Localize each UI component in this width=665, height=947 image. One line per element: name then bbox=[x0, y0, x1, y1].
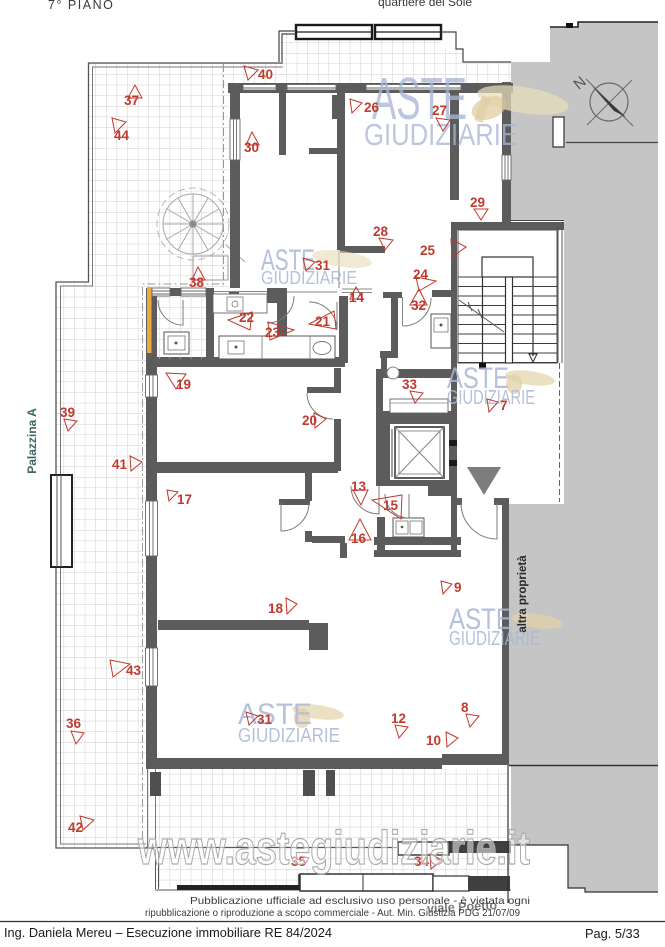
svg-text:GIUDIZIARIE: GIUDIZIARIE bbox=[261, 267, 357, 288]
svg-text:27: 27 bbox=[432, 103, 447, 118]
svg-text:10: 10 bbox=[426, 733, 441, 748]
svg-text:GIUDIZIARIE: GIUDIZIARIE bbox=[238, 725, 340, 747]
svg-text:32: 32 bbox=[411, 298, 426, 313]
svg-text:41: 41 bbox=[112, 457, 128, 472]
svg-text:17: 17 bbox=[177, 492, 192, 507]
svg-text:18: 18 bbox=[268, 601, 284, 616]
svg-text:38: 38 bbox=[189, 275, 205, 290]
svg-text:30: 30 bbox=[244, 140, 259, 155]
svg-text:19: 19 bbox=[176, 377, 191, 392]
svg-text:Pubblicazione ufficiale ad esc: Pubblicazione ufficiale ad esclusivo uso… bbox=[190, 895, 530, 907]
svg-text:Ing. Daniela Mereu – Esecuzion: Ing. Daniela Mereu – Esecuzione immobili… bbox=[4, 925, 332, 940]
svg-text:ripubblicazione o riproduzione: ripubblicazione o riproduzione a scopo c… bbox=[145, 907, 520, 919]
svg-text:Pag. 5/33: Pag. 5/33 bbox=[585, 926, 640, 941]
svg-text:42: 42 bbox=[68, 820, 83, 835]
svg-text:31: 31 bbox=[315, 258, 331, 273]
svg-text:8: 8 bbox=[461, 700, 469, 715]
svg-text:39: 39 bbox=[60, 405, 75, 420]
svg-text:7: 7 bbox=[500, 398, 508, 413]
svg-text:20: 20 bbox=[302, 413, 317, 428]
svg-text:9: 9 bbox=[454, 580, 462, 595]
svg-text:15: 15 bbox=[383, 498, 399, 513]
svg-text:13: 13 bbox=[351, 479, 367, 494]
svg-text:44: 44 bbox=[114, 128, 130, 143]
svg-text:26: 26 bbox=[364, 100, 380, 115]
svg-text:12: 12 bbox=[391, 711, 406, 726]
svg-text:quartiere del Sole: quartiere del Sole bbox=[378, 0, 472, 9]
svg-text:31: 31 bbox=[257, 712, 273, 727]
svg-text:29: 29 bbox=[470, 195, 485, 210]
svg-text:22: 22 bbox=[239, 310, 254, 325]
svg-text:37: 37 bbox=[124, 93, 139, 108]
svg-text:altra proprietà: altra proprietà bbox=[517, 555, 529, 633]
svg-text:www.astegiudiziarie.it: www.astegiudiziarie.it bbox=[137, 821, 530, 874]
svg-text:40: 40 bbox=[258, 67, 273, 82]
svg-text:23: 23 bbox=[265, 325, 281, 340]
svg-text:33: 33 bbox=[402, 377, 418, 392]
svg-text:7° PIANO: 7° PIANO bbox=[48, 0, 114, 12]
svg-text:25: 25 bbox=[420, 243, 436, 258]
svg-text:24: 24 bbox=[413, 267, 429, 282]
svg-text:GIUDIZIARIE: GIUDIZIARIE bbox=[364, 117, 518, 152]
svg-text:43: 43 bbox=[126, 663, 142, 678]
svg-text:21: 21 bbox=[315, 314, 331, 329]
svg-text:GIUDIZIARIE: GIUDIZIARIE bbox=[447, 387, 535, 409]
svg-text:Palazzina A: Palazzina A bbox=[25, 408, 39, 474]
svg-text:36: 36 bbox=[66, 716, 82, 731]
svg-text:16: 16 bbox=[351, 531, 367, 546]
svg-text:14: 14 bbox=[349, 290, 365, 305]
svg-text:28: 28 bbox=[373, 224, 389, 239]
